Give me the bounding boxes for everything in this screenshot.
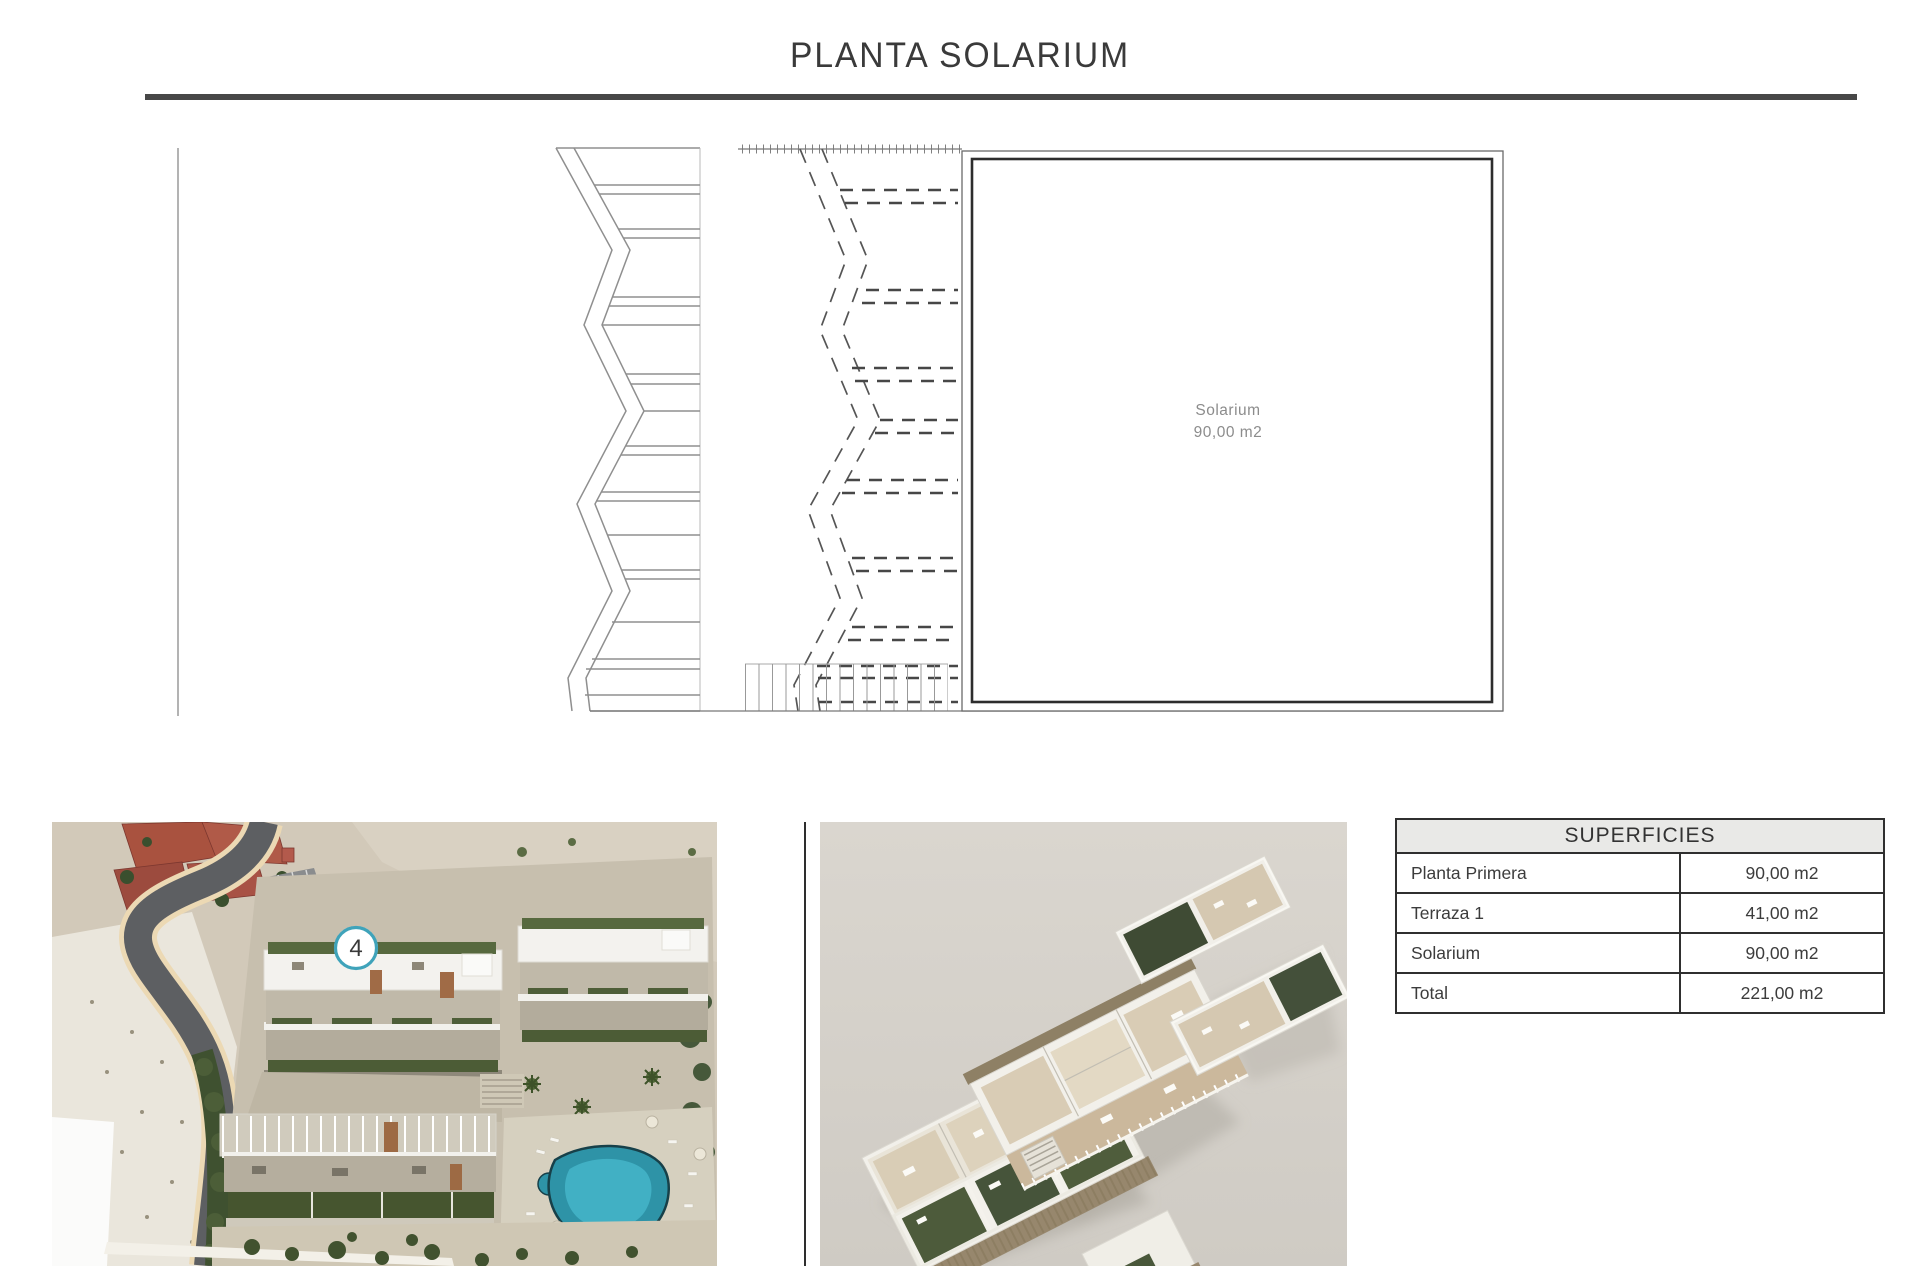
- brochure-page: PLANTA SOLARIUM: [0, 0, 1920, 1280]
- row-label: Terraza 1: [1397, 894, 1681, 932]
- table-row: Solarium 90,00 m2: [1397, 934, 1883, 974]
- image-divider: [804, 822, 806, 1266]
- dashed-projection-band: [738, 149, 962, 711]
- solarium-floor-plan: Solarium 90,00 m2: [140, 120, 1560, 760]
- row-value: 90,00 m2: [1681, 934, 1883, 972]
- table-row: Total 221,00 m2: [1397, 974, 1883, 1012]
- plan-room-area: 90,00 m2: [1194, 424, 1263, 441]
- plan-room-label: Solarium: [1195, 402, 1260, 419]
- axonometric-render: [820, 822, 1347, 1266]
- row-value: 90,00 m2: [1681, 854, 1883, 892]
- table-row: Planta Primera 90,00 m2: [1397, 854, 1883, 894]
- white-corner: [52, 1117, 114, 1266]
- row-value: 221,00 m2: [1681, 974, 1883, 1012]
- terrace-hatch-band: [556, 148, 700, 711]
- townhouse-block-upper-left: [264, 942, 502, 1080]
- stair-element: [745, 664, 948, 688]
- table-row: Terraza 1 41,00 m2: [1397, 894, 1883, 934]
- table-header: SUPERFICIES: [1397, 820, 1883, 854]
- row-label: Solarium: [1397, 934, 1681, 972]
- page-title: PLANTA SOLARIUM: [38, 36, 1881, 76]
- unit-badge: 4: [334, 926, 378, 970]
- row-label: Planta Primera: [1397, 854, 1681, 892]
- title-rule: [145, 94, 1857, 100]
- row-value: 41,00 m2: [1681, 894, 1883, 932]
- aerial-site-photo: 4: [52, 822, 717, 1266]
- superficies-table: SUPERFICIES Planta Primera 90,00 m2 Terr…: [1395, 818, 1885, 1014]
- solarium-room: Solarium 90,00 m2: [962, 151, 1503, 711]
- townhouse-block-upper-right: [518, 918, 708, 1042]
- townhouse-block-lower: [220, 1114, 496, 1228]
- site-stairs: [480, 1074, 524, 1108]
- badge-number: 4: [349, 935, 362, 962]
- row-label: Total: [1397, 974, 1681, 1012]
